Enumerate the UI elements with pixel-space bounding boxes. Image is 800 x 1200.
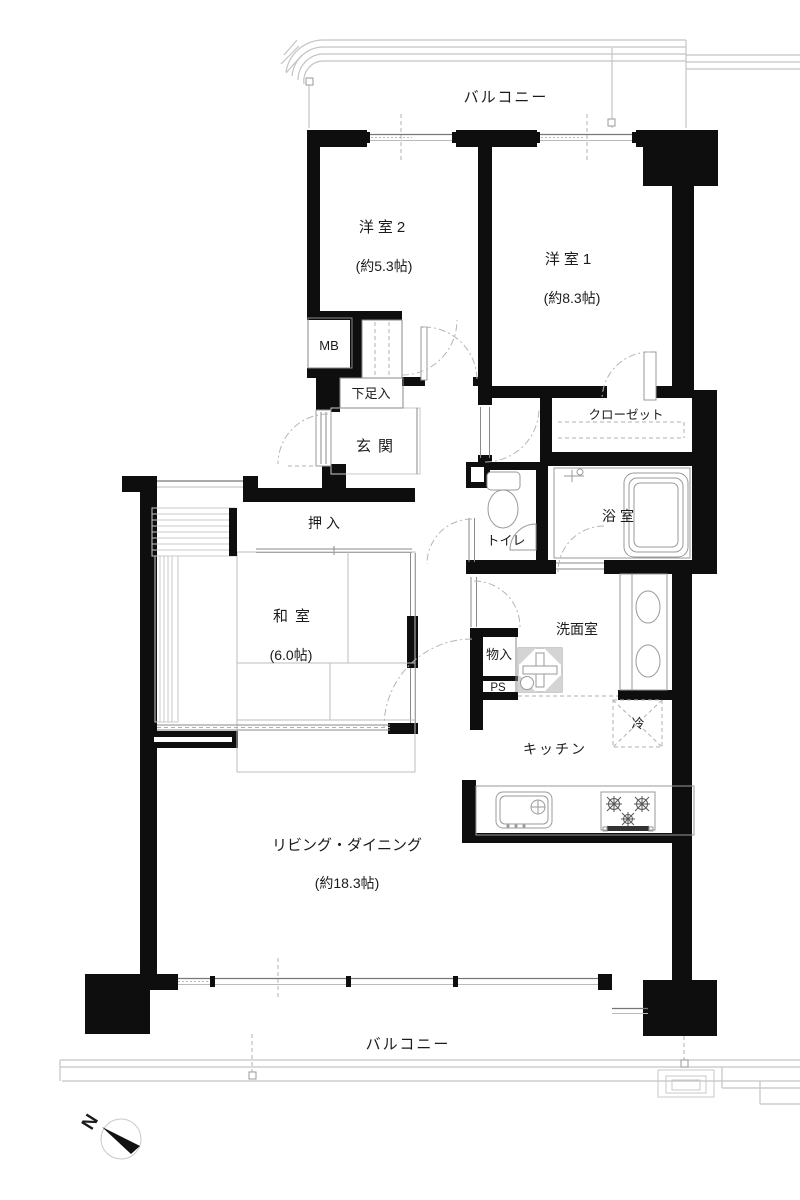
western1-closet-door [602, 352, 656, 400]
balcony-bottom-label: バルコニー [366, 1036, 451, 1053]
entrance-door [278, 410, 331, 466]
shoe-cabinet-label: 下足入 [351, 386, 390, 401]
window-bottom-kitchen [612, 1009, 648, 1014]
kitchen-counter [476, 786, 694, 835]
japanese-room-size: (6.0帖) [270, 647, 313, 663]
window-tatami-side [157, 481, 243, 487]
western2-door [402, 320, 477, 380]
toilet-label: トイレ [486, 533, 525, 548]
living-dining-size: (約18.3帖) [315, 875, 380, 891]
north-letter: N [78, 1111, 103, 1134]
kitchen-sink [496, 792, 552, 828]
bath-door-arc [558, 526, 604, 572]
window-top-right [536, 114, 636, 162]
japanese-room-label: 和室 [273, 608, 317, 625]
balcony-top-label: バルコニー [464, 89, 549, 106]
tokonoma-hatch [152, 508, 237, 556]
windows [157, 114, 648, 1014]
engawa-hatch [155, 556, 178, 722]
window-bottom-main [178, 958, 598, 998]
washroom-door [474, 581, 520, 627]
floor-plan: バルコニー 洋室2 (約5.3帖) 洋室1 (約8.3帖) MB 下足入 玄関 … [0, 0, 800, 1200]
closet-label: クローゼット [588, 408, 663, 422]
stove [601, 792, 655, 831]
meter-box-label: MB [319, 338, 339, 353]
western2-label: 洋室2 [359, 219, 409, 236]
oshiire-label: 押入 [308, 515, 344, 531]
north-arrow: N [78, 1111, 141, 1159]
kitchen-opening-arc [384, 639, 472, 727]
bathroom-label: 浴室 [602, 508, 638, 524]
kitchen-label: キッチン [523, 741, 587, 757]
pipe-space-label: PS [490, 682, 506, 694]
storage-label: 物入 [486, 647, 512, 662]
washing-machine-pan [518, 648, 562, 692]
balcony-railing-top [281, 40, 800, 128]
balcony-hatch-box [658, 1070, 714, 1097]
vanity-sink [620, 574, 667, 690]
western1-size: (約8.3帖) [544, 290, 601, 306]
floor-plan-drawing: バルコニー 洋室2 (約5.3帖) 洋室1 (約8.3帖) MB 下足入 玄関 … [0, 0, 800, 1200]
north-arrow-needle [102, 1127, 140, 1154]
washroom-label: 洗面室 [556, 621, 598, 637]
window-top-left [366, 114, 456, 162]
entrance-label: 玄関 [356, 438, 400, 455]
western1-label: 洋室1 [545, 251, 595, 268]
living-dining-label: リビング・ダイニング [272, 837, 422, 854]
shower-icon [564, 469, 584, 482]
refrigerator-label: 冷 [631, 716, 644, 731]
western2-size: (約5.3帖) [356, 258, 413, 274]
western2-closet [362, 320, 402, 378]
toilet-door [427, 519, 472, 564]
hall-door [485, 410, 539, 462]
tatami-grid [237, 552, 415, 772]
